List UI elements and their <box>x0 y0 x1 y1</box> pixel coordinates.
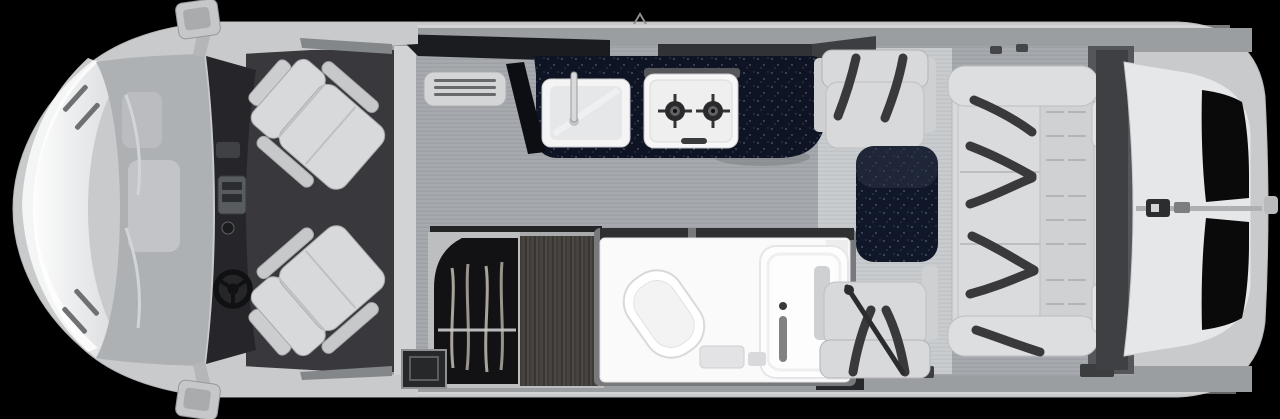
dash-vent <box>216 142 240 158</box>
shower-faucet-icon <box>779 316 787 362</box>
shower-drain <box>779 302 787 310</box>
faucet-icon <box>571 72 577 122</box>
bath-shelf <box>700 346 744 368</box>
seat-cushion <box>824 282 926 346</box>
rear-gap <box>1096 50 1128 370</box>
stove-handle <box>681 138 707 144</box>
hanger-icon-3 <box>486 266 488 372</box>
dinette-seat-rear <box>814 266 938 378</box>
bath-accessory <box>748 352 766 366</box>
wall-latch-top-2 <box>1016 44 1028 52</box>
screen-line-2 <box>222 194 242 202</box>
dinette-seat-forward <box>814 50 936 148</box>
mirror-glass <box>183 387 212 411</box>
hanger-icon-2 <box>467 264 468 370</box>
burner-dot-1 <box>673 109 677 113</box>
burner-dot-2 <box>711 109 715 113</box>
cabinet-wood-grain <box>520 236 598 386</box>
wardrobe-cabinet <box>402 226 604 388</box>
seatbelt-buckle <box>844 285 854 295</box>
rv-floorplan-image <box>0 0 1280 419</box>
hanger-icon-1 <box>452 268 454 368</box>
dash-knob <box>222 222 234 234</box>
latch-bracket <box>1174 202 1190 213</box>
windshield-reflection <box>128 160 180 252</box>
sofa-backrest <box>1040 94 1094 330</box>
vent-slot-3 <box>434 93 496 96</box>
table-reflection <box>856 146 938 188</box>
screen-line-1 <box>222 182 242 190</box>
vent-slot-2 <box>434 86 496 89</box>
seat-backrest <box>820 340 930 378</box>
rear-window-1 <box>1202 90 1249 202</box>
mirror-glass <box>183 6 212 30</box>
entry-step-well <box>402 350 446 388</box>
rear-sofa <box>948 66 1120 356</box>
hanger-icon-4 <box>501 262 502 370</box>
vent-slot-1 <box>434 79 496 82</box>
cab-partition-wall <box>394 46 416 376</box>
wall-latch-top-1 <box>990 46 1002 54</box>
latch-pin <box>1151 204 1159 212</box>
rear-step-nub <box>1264 196 1278 214</box>
rear-window-2 <box>1202 218 1249 330</box>
